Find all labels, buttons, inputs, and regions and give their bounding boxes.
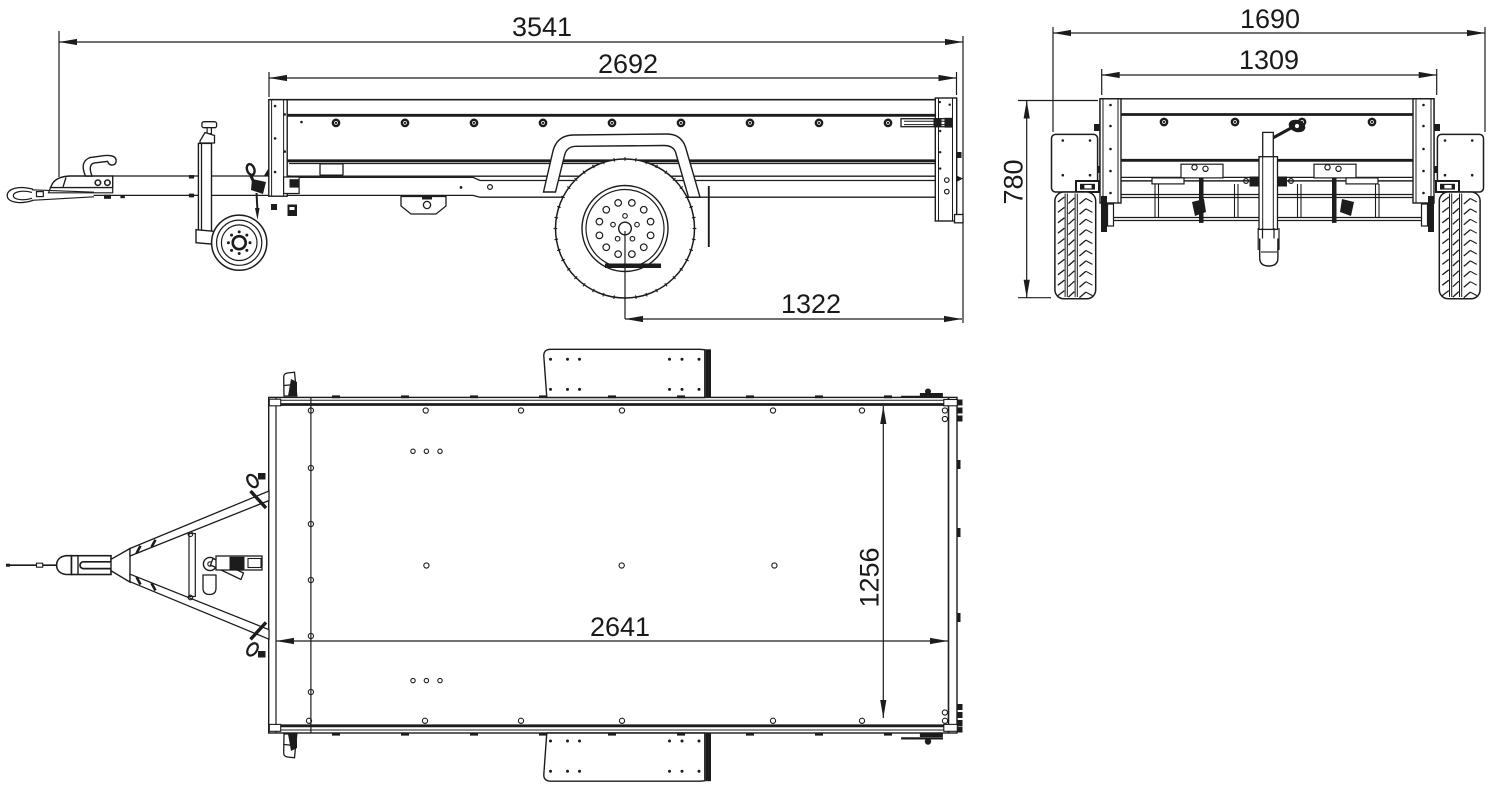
- svg-text:2641: 2641: [590, 612, 650, 642]
- svg-text:1690: 1690: [1240, 4, 1300, 34]
- svg-text:3541: 3541: [512, 12, 572, 42]
- svg-text:2692: 2692: [598, 49, 658, 79]
- svg-text:1322: 1322: [781, 289, 841, 319]
- svg-text:780: 780: [999, 159, 1029, 204]
- svg-text:1256: 1256: [855, 547, 885, 607]
- svg-text:1309: 1309: [1239, 45, 1299, 75]
